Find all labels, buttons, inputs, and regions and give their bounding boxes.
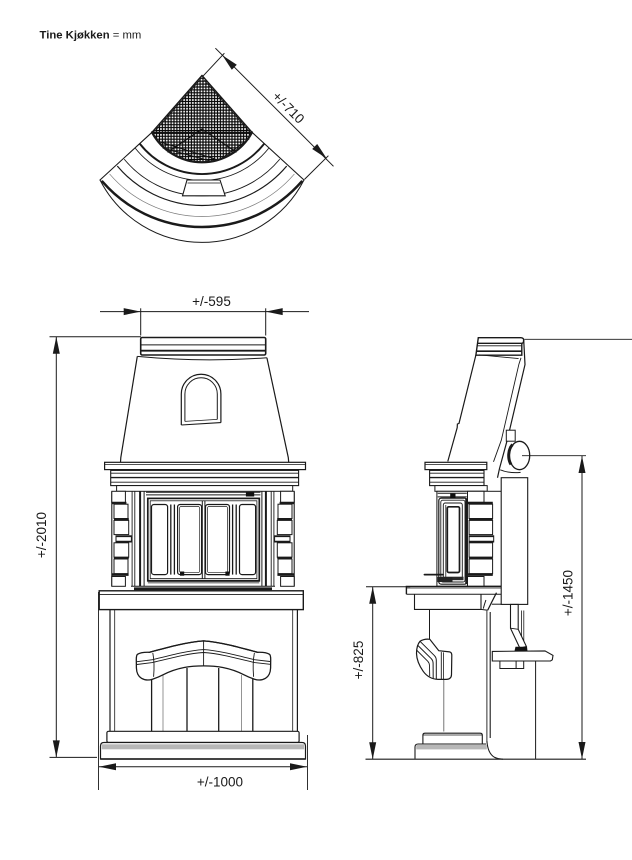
svg-text:+/-1450: +/-1450 xyxy=(561,570,576,616)
svg-text:+/-2010: +/-2010 xyxy=(34,512,49,558)
svg-text:Tine Kjøkken = mm: Tine Kjøkken = mm xyxy=(40,30,142,42)
svg-text:+/-1000: +/-1000 xyxy=(197,775,243,790)
svg-text:+/-825: +/-825 xyxy=(351,641,366,680)
svg-text:+/-595: +/-595 xyxy=(192,294,231,309)
